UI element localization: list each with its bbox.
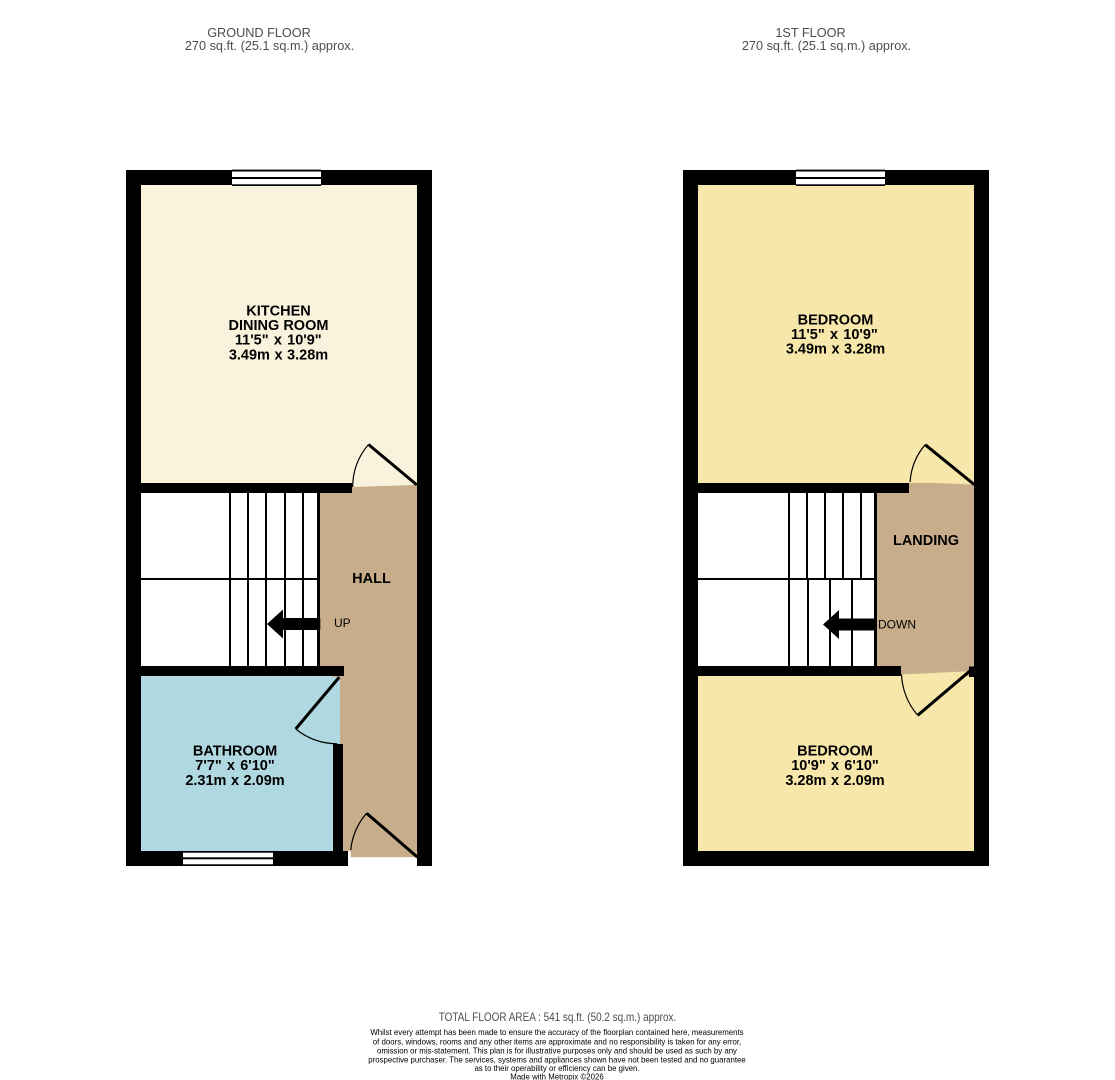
svg-text:UP: UP — [334, 616, 351, 630]
svg-text:BATHROOM: BATHROOM — [193, 743, 277, 759]
svg-text:omission or mis-statement. Thi: omission or mis-statement. This plan is … — [377, 1047, 737, 1056]
svg-text:3.28m x 2.09m: 3.28m x 2.09m — [785, 773, 884, 789]
svg-text:KITCHEN: KITCHEN — [246, 303, 310, 319]
svg-text:TOTAL FLOOR AREA : 541 sq.ft.: TOTAL FLOOR AREA : 541 sq.ft. (50.2 sq.m… — [439, 1010, 677, 1024]
svg-text:11'5" x 10'9": 11'5" x 10'9" — [235, 333, 322, 349]
svg-text:Whilst every attempt has been: Whilst every attempt has been made to en… — [370, 1028, 743, 1037]
svg-text:HALL: HALL — [352, 571, 391, 587]
svg-text:7'7" x 6'10": 7'7" x 6'10" — [195, 758, 275, 774]
svg-text:of doors, windows, rooms and a: of doors, windows, rooms and any other i… — [373, 1037, 741, 1046]
svg-text:270 sq.ft. (25.1 sq.m.) approx: 270 sq.ft. (25.1 sq.m.) approx. — [185, 39, 354, 53]
svg-text:1ST FLOOR: 1ST FLOOR — [775, 26, 845, 40]
svg-text:3.49m x 3.28m: 3.49m x 3.28m — [229, 347, 328, 363]
svg-text:Made with Metropix ©2026: Made with Metropix ©2026 — [510, 1072, 604, 1080]
svg-text:DOWN: DOWN — [878, 618, 916, 632]
svg-text:BEDROOM: BEDROOM — [798, 312, 874, 328]
svg-text:LANDING: LANDING — [893, 533, 959, 549]
svg-text:BEDROOM: BEDROOM — [797, 743, 873, 759]
svg-text:GROUND FLOOR: GROUND FLOOR — [207, 26, 311, 40]
svg-text:DINING ROOM: DINING ROOM — [229, 318, 329, 334]
svg-text:3.49m x 3.28m: 3.49m x 3.28m — [786, 342, 885, 358]
svg-text:10'9" x 6'10": 10'9" x 6'10" — [791, 758, 879, 774]
svg-text:11'5" x 10'9": 11'5" x 10'9" — [791, 327, 878, 343]
svg-text:2.31m x 2.09m: 2.31m x 2.09m — [185, 773, 284, 789]
svg-text:270 sq.ft. (25.1 sq.m.) approx: 270 sq.ft. (25.1 sq.m.) approx. — [742, 39, 911, 53]
